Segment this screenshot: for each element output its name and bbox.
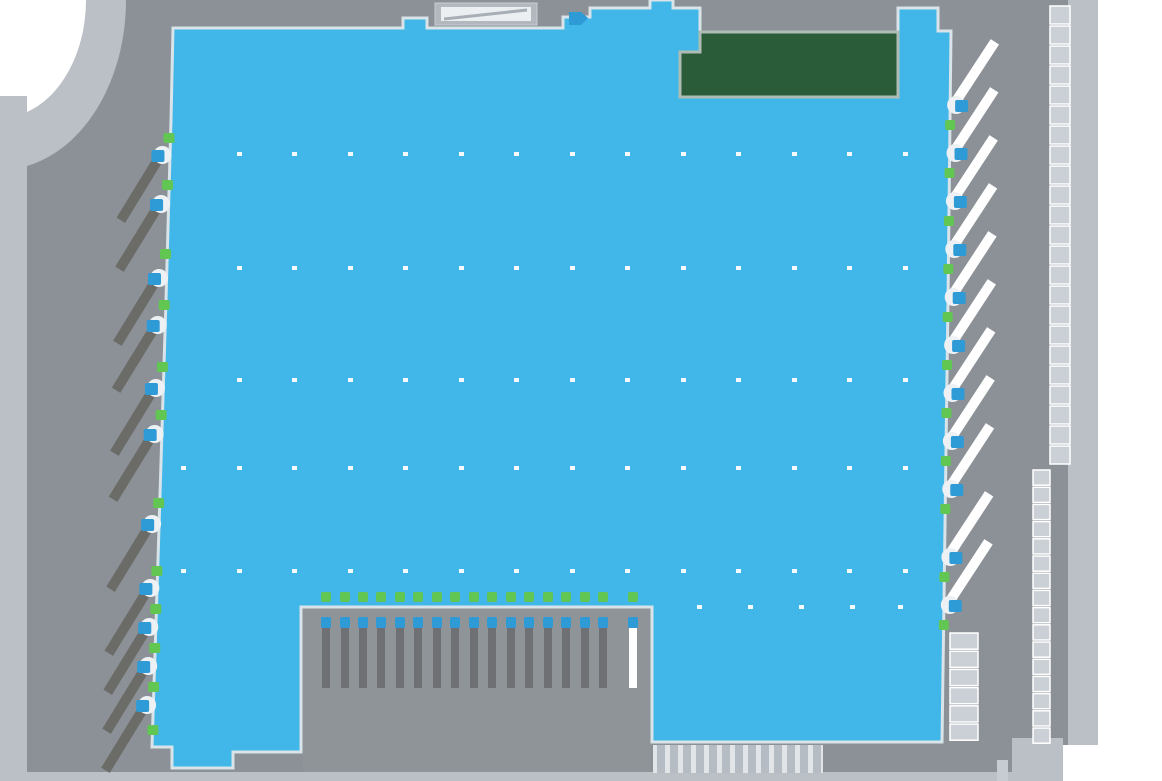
column-dot [570,569,575,573]
column-dot [625,569,630,573]
column-dot [903,152,908,156]
column-dot [514,569,519,573]
column-dot [736,378,741,382]
column-dot [570,266,575,270]
dock-marker-blue [139,583,152,595]
dock-marker-blue [561,617,571,628]
court-trailer [525,628,533,688]
dock-marker-blue [954,196,967,208]
dock-marker-green [432,592,442,602]
dock-marker-blue [376,617,386,628]
column-dot [681,569,686,573]
dock-marker-blue [952,340,965,352]
column-dot [898,605,903,609]
dock-marker-green [598,592,608,602]
dock-marker-green [149,643,160,653]
column-dot [799,605,804,609]
column-dot [292,569,297,573]
column-dot [570,378,575,382]
column-dot [681,266,686,270]
column-dot [237,466,242,470]
column-dot [847,378,852,382]
court-trailer [359,628,367,688]
dock-marker-green [469,592,479,602]
court-trailer [414,628,422,688]
column-dot [514,266,519,270]
dock-marker-blue [506,617,516,628]
dock-marker-green [395,592,405,602]
column-dot [237,152,242,156]
column-dot [237,266,242,270]
dock-marker-blue [949,552,962,564]
bottom-parking-strip [653,745,823,773]
dock-marker-green [151,566,162,576]
column-dot [625,466,630,470]
column-dot [403,152,408,156]
dock-marker-green [506,592,516,602]
court-trailer [377,628,385,688]
column-dot [514,466,519,470]
dock-marker-green [157,362,168,372]
dock-marker-green [150,604,161,614]
dock-marker-green [160,249,171,259]
column-dot [625,152,630,156]
right-road [1068,0,1098,772]
column-dot [514,378,519,382]
column-dot [625,378,630,382]
dock-marker-blue [955,148,968,160]
court-trailer [562,628,570,688]
dock-marker-green [413,592,423,602]
column-dot [903,266,908,270]
dock-marker-green [941,408,951,418]
column-dot [459,378,464,382]
dock-marker-green [944,216,954,226]
column-dot [736,466,741,470]
dock-marker-blue [487,617,497,628]
court-trailer [451,628,459,688]
column-dot [403,466,408,470]
column-dot [847,466,852,470]
dock-marker-green [163,133,174,143]
dock-marker-blue [145,383,158,395]
column-dot [748,605,753,609]
column-dot [847,266,852,270]
dock-marker-blue [524,617,534,628]
facility-map-canvas[interactable] [0,0,1162,781]
dock-marker-green [943,312,953,322]
column-dot [403,569,408,573]
column-dot [570,152,575,156]
office-block-group [680,32,898,97]
dock-marker-blue [136,700,149,712]
dock-marker-green [340,592,350,602]
dock-marker-green [450,592,460,602]
dock-marker-green [940,504,950,514]
court-trailer [507,628,515,688]
court-trailer [488,628,496,688]
dock-marker-blue [953,292,966,304]
dock-marker-blue [951,436,964,448]
column-dot [348,378,353,382]
column-dot [681,378,686,382]
column-dot [459,466,464,470]
court-trailer-empty [629,628,637,688]
dock-marker-green [945,168,955,178]
dock-marker-blue [148,273,161,285]
column-dot [847,152,852,156]
column-dot [292,466,297,470]
dock-marker-green [358,592,368,602]
dock-marker-green [321,592,331,602]
facility-map [0,0,1162,781]
column-dot [903,466,908,470]
dock-marker-blue [450,617,460,628]
column-dot [847,569,852,573]
dock-marker-blue [358,617,368,628]
dock-marker-blue [150,199,163,211]
column-dot [681,466,686,470]
dock-marker-blue [147,320,160,332]
dock-marker-green [159,300,170,310]
column-dot [792,378,797,382]
dock-marker-blue [598,617,608,628]
column-dot [850,605,855,609]
dock-marker-blue [949,600,962,612]
bottom-right-box [997,760,1008,781]
column-dot [292,152,297,156]
column-dot [903,378,908,382]
dock-marker-green [147,725,158,735]
column-dot [348,466,353,470]
dock-marker-blue [951,388,964,400]
dock-marker-green [939,620,949,630]
dock-marker-green [524,592,534,602]
column-dot [459,569,464,573]
left-road [0,96,27,772]
dock-marker-green [148,682,159,692]
column-dot [292,378,297,382]
column-dot [181,569,186,573]
dock-marker-green [543,592,553,602]
dock-marker-blue [151,150,164,162]
dock-marker-blue [138,622,151,634]
dock-marker-blue [953,244,966,256]
column-dot [181,466,186,470]
court-trailer [581,628,589,688]
court-trailer [322,628,330,688]
offmap-bottom-right-white [1063,745,1162,781]
column-dot [459,266,464,270]
column-dot [237,378,242,382]
offmap-right-white [1098,0,1162,781]
column-dot [403,266,408,270]
column-dot [403,378,408,382]
column-dot [514,152,519,156]
column-dot [792,466,797,470]
column-dot [459,152,464,156]
column-dot [348,152,353,156]
dock-marker-green [487,592,497,602]
dock-marker-green [153,498,164,508]
column-dot [348,569,353,573]
dock-marker-green [376,592,386,602]
court-trailer [599,628,607,688]
court-trailer [470,628,478,688]
column-dot [903,569,908,573]
column-dot [697,605,702,609]
dock-marker-blue [543,617,553,628]
dock-marker-blue [144,429,157,441]
dock-marker-green [942,360,952,370]
dock-marker-blue [432,617,442,628]
dock-marker-green [945,120,955,130]
column-dot [681,152,686,156]
dock-marker-green [561,592,571,602]
dock-marker-green [162,180,173,190]
column-dot [625,266,630,270]
dock-marker-blue [950,484,963,496]
dock-marker-blue [141,519,154,531]
column-dot [292,266,297,270]
dock-marker-blue [628,617,638,628]
column-dot [237,569,242,573]
court-trailer [396,628,404,688]
parking-strip-0 [1050,6,1070,464]
court-trailer [433,628,441,688]
column-dot [736,266,741,270]
column-dot [570,466,575,470]
column-dot [792,569,797,573]
column-dot [736,569,741,573]
bottom-right-pad [1012,738,1063,781]
dock-marker-green [941,456,951,466]
dock-marker-blue [955,100,968,112]
dock-marker-blue [137,661,150,673]
dock-marker-blue [413,617,423,628]
column-dot [736,152,741,156]
dock-marker-green [943,264,953,274]
dock-marker-green [628,592,638,602]
dock-marker-blue [340,617,350,628]
column-dot [792,152,797,156]
dock-marker-blue [580,617,590,628]
court-trailer [544,628,552,688]
dock-marker-green [580,592,590,602]
column-dot [792,266,797,270]
dock-marker-blue [321,617,331,628]
dock-marker-blue [395,617,405,628]
bottom-road [0,772,1063,781]
office-block [680,32,898,97]
canopy-structure [435,3,537,25]
column-dot [348,266,353,270]
court-trailer [341,628,349,688]
dock-marker-green [156,410,167,420]
dock-marker-blue [469,617,479,628]
dock-marker-green [939,572,949,582]
